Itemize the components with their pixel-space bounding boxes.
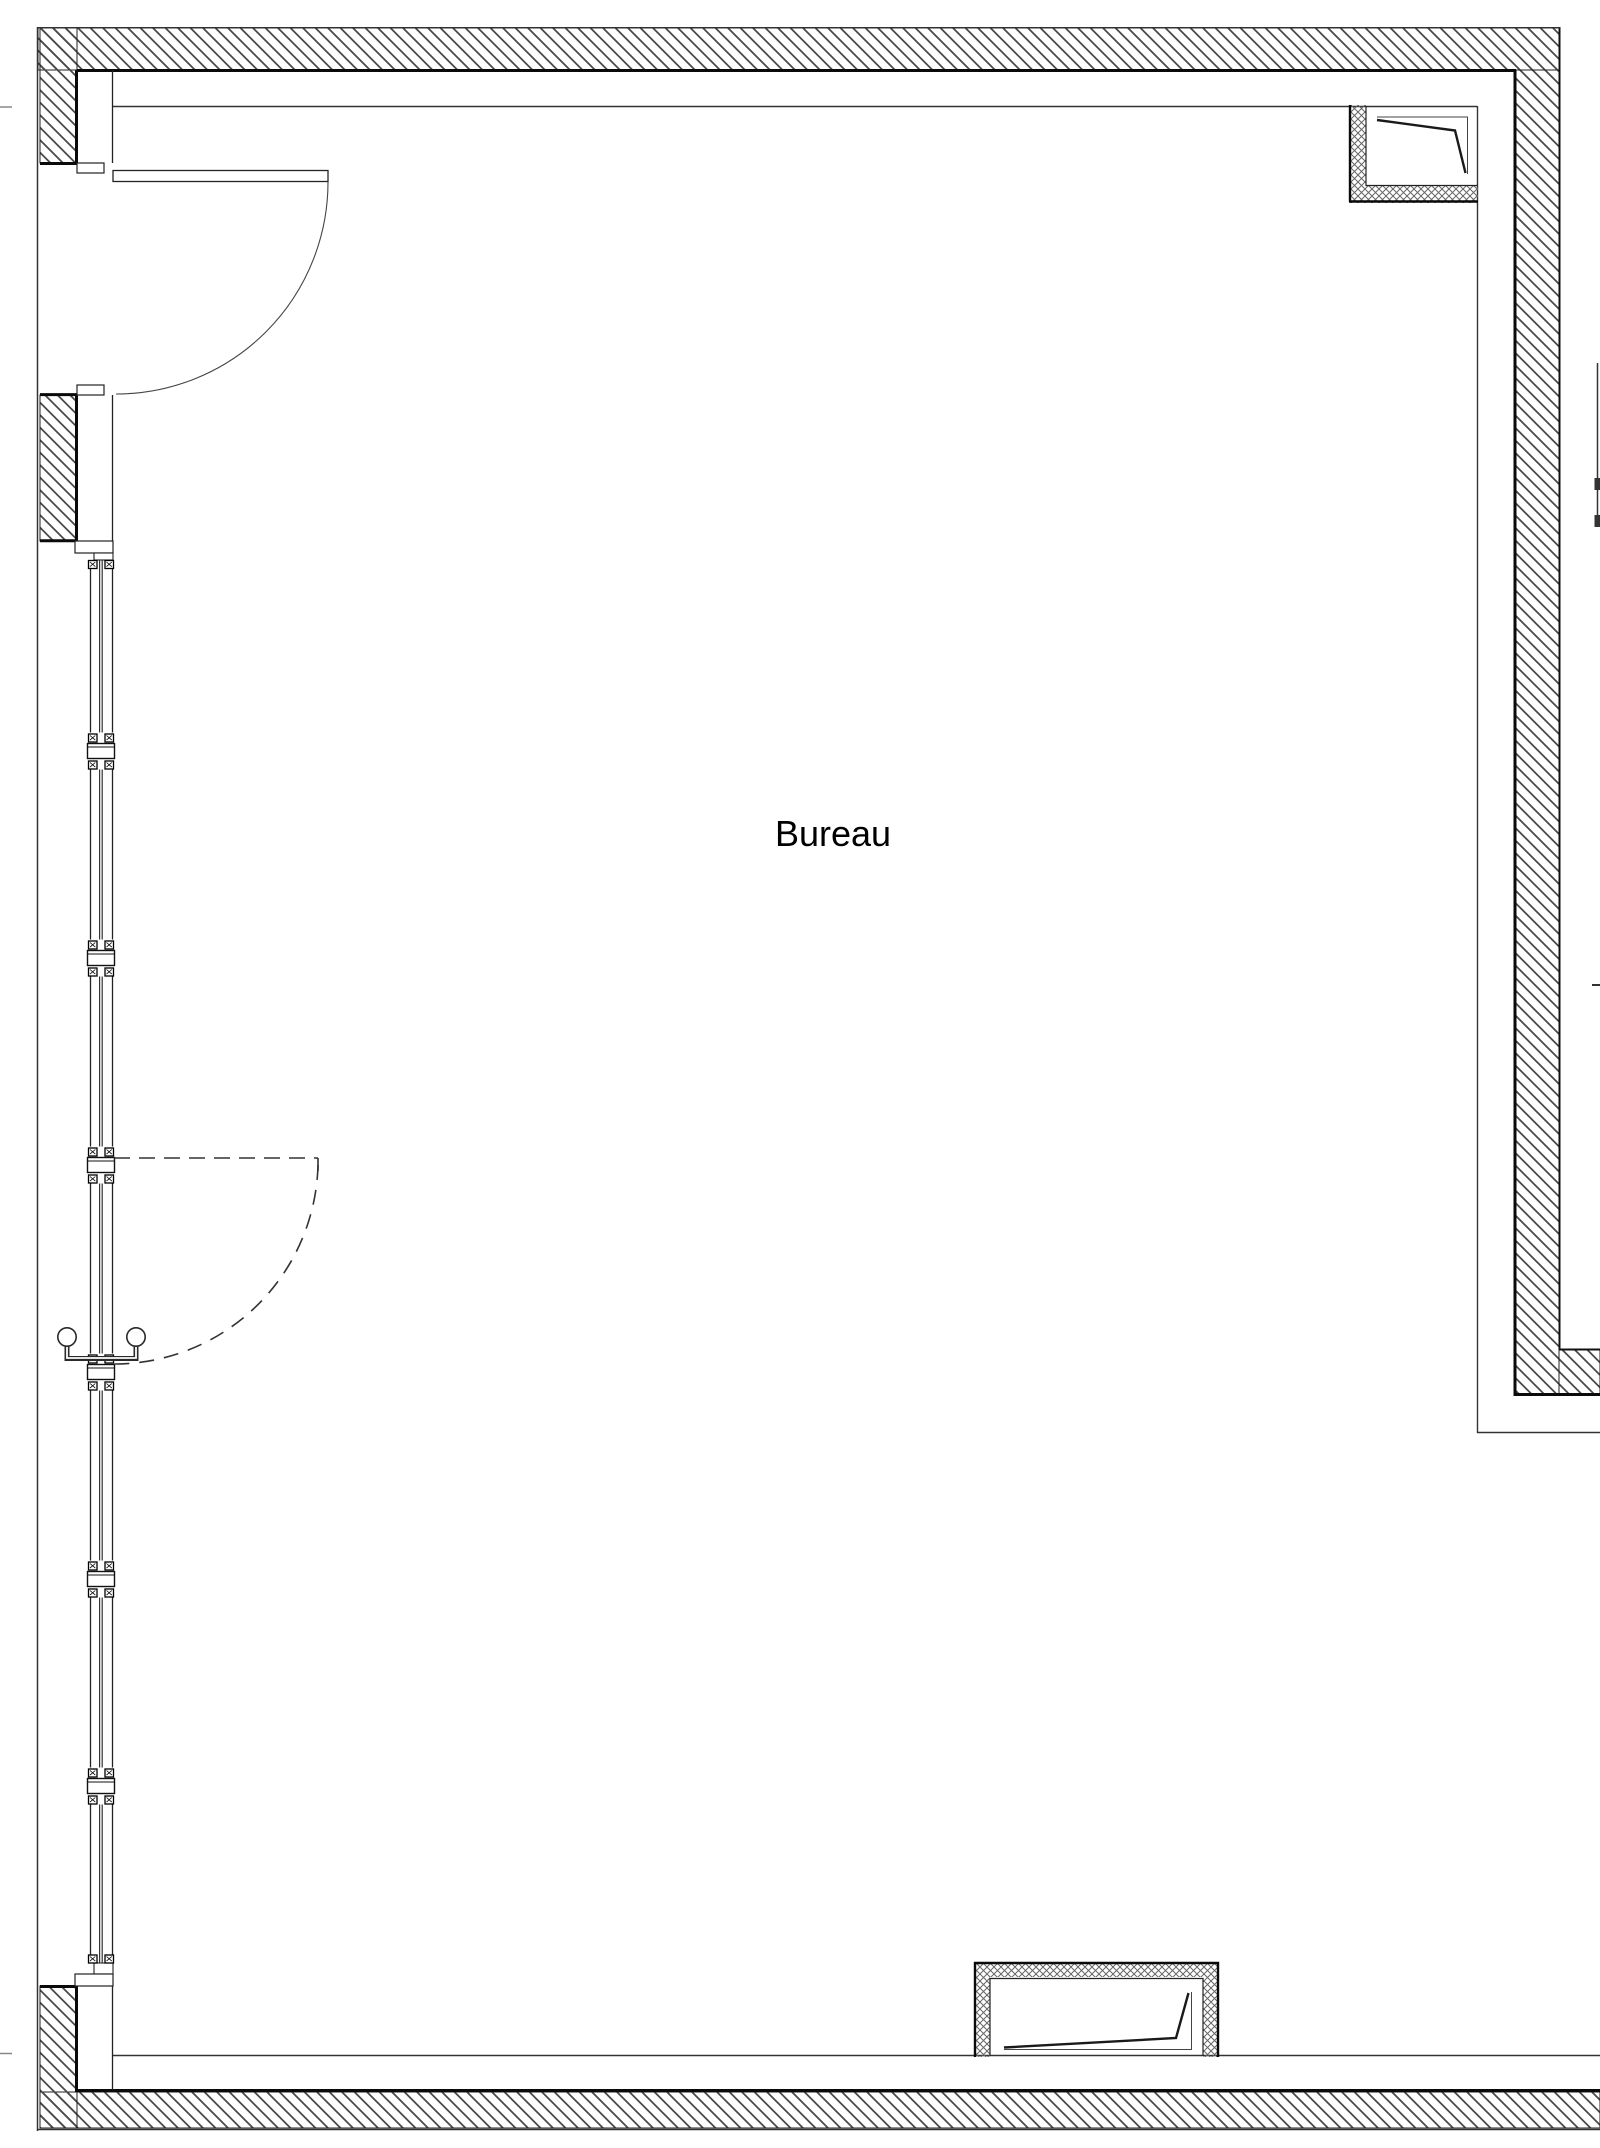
left-wall-pier-upper <box>40 395 77 541</box>
right-wall <box>1516 70 1559 1394</box>
mullion-joint <box>86 1768 116 1805</box>
handle-knob-left <box>58 1328 76 1346</box>
door-jamb-bottom <box>77 385 104 395</box>
door-leaf <box>113 171 328 182</box>
frame-block <box>105 561 114 569</box>
paper-background <box>0 0 1600 2148</box>
floor-plan-page: Bureau <box>0 0 1600 2148</box>
window-sill-top-step1 <box>75 541 113 553</box>
clipped-mark-right <box>1595 515 1600 527</box>
top-wall <box>38 28 1559 70</box>
window-sill-bottom-step2 <box>75 1974 113 1986</box>
left-wall-top-segment <box>40 28 77 163</box>
mullion-joint <box>86 940 116 977</box>
mullion-joint <box>86 733 116 770</box>
bottom-wall <box>40 2092 1600 2128</box>
room-label: Bureau <box>775 813 891 854</box>
frame-block <box>105 1955 114 1963</box>
window-sill-top-step2 <box>94 553 113 560</box>
frame-block <box>89 1955 98 1963</box>
mullion-joint <box>86 1147 116 1184</box>
mullion-joint <box>86 1561 116 1598</box>
floor-plan-canvas: Bureau <box>0 0 1600 2148</box>
left-wall-pier-lower <box>40 1986 77 2128</box>
right-wall-return <box>1559 1350 1600 1394</box>
clipped-mark-right <box>1595 478 1600 490</box>
window-sill-bottom-step1 <box>94 1963 113 1974</box>
handle-knob-right <box>127 1328 145 1346</box>
door-jamb-top <box>77 163 104 173</box>
frame-block <box>89 561 98 569</box>
